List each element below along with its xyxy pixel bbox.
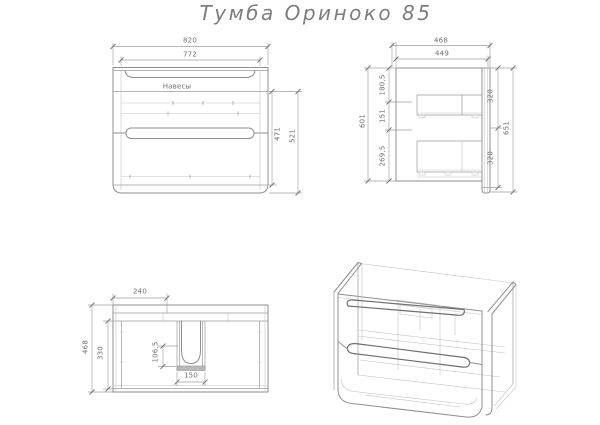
- dim-top-cutout-width: 150: [184, 372, 198, 379]
- dim-top-depth-outer: 468: [82, 340, 89, 354]
- front-view: [111, 43, 303, 196]
- dim-side-front-bottom: 320: [487, 151, 494, 165]
- dim-top-depth-inner: 330: [98, 346, 105, 360]
- drawing-canvas: { "title": "Тумба Ориноко 85", "front_vi…: [0, 0, 600, 425]
- dim-side-depth-outer: 468: [434, 37, 448, 44]
- dim-side-height-front: 651: [503, 121, 510, 135]
- dim-side-mid-section: 151: [379, 109, 386, 123]
- dim-side-front-top: 320: [487, 89, 494, 103]
- drawing-title: Тумба Ориноко 85: [200, 1, 433, 25]
- dim-side-height-back: 601: [359, 114, 366, 128]
- dim-side-bottom-section: 269,5: [379, 145, 386, 166]
- dim-side-top-section: 180,5: [379, 74, 386, 95]
- dim-front-height-inner: 471: [275, 127, 282, 141]
- dim-side-depth-inner: 449: [435, 51, 449, 58]
- iso-view: [334, 263, 516, 418]
- drawing-linework: [0, 0, 600, 425]
- dim-front-width-outer: 820: [183, 38, 197, 45]
- dim-top-offset: 240: [133, 288, 147, 295]
- top-view: [88, 294, 268, 395]
- dim-front-height-outer: 521: [289, 129, 296, 143]
- dim-top-cutout-depth: 106,5: [152, 341, 159, 362]
- dim-front-width-inner: 772: [183, 51, 197, 58]
- side-view: [364, 42, 517, 195]
- front-shelf-label: Навесы: [163, 83, 192, 90]
